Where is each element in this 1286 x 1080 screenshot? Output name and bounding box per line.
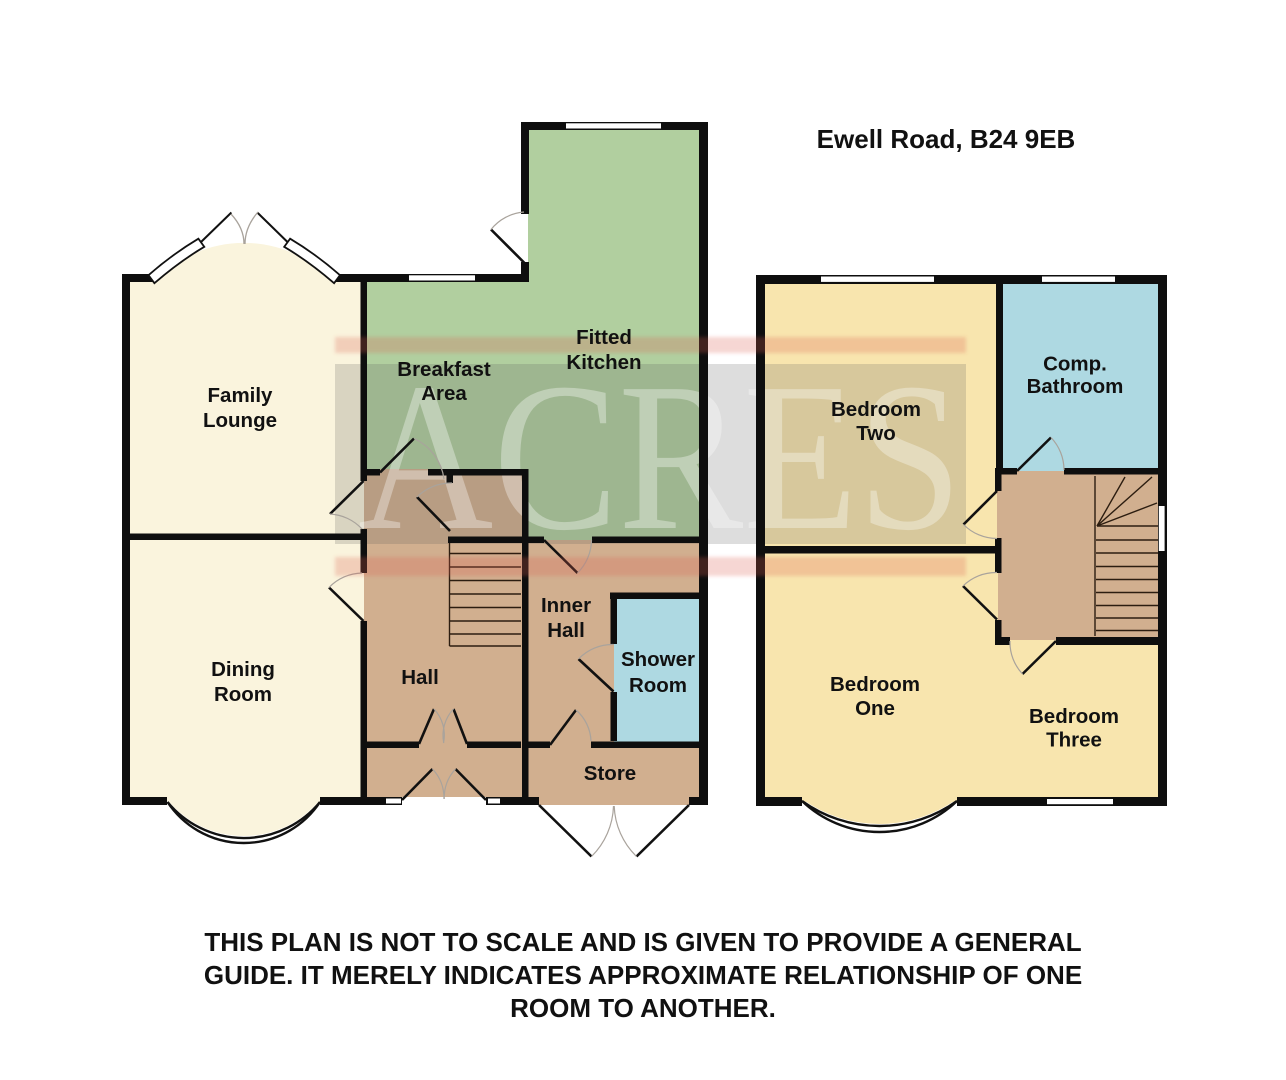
svg-text:Family: Family	[208, 384, 274, 407]
svg-text:Bathroom: Bathroom	[1027, 375, 1124, 398]
svg-text:GUIDE. IT MERELY INDICATES APP: GUIDE. IT MERELY INDICATES APPROXIMATE R…	[204, 960, 1082, 990]
svg-text:Bedroom: Bedroom	[831, 398, 921, 421]
svg-text:Three: Three	[1046, 729, 1102, 752]
svg-text:Room: Room	[629, 674, 687, 697]
svg-text:Dining: Dining	[211, 658, 275, 681]
svg-text:Hall: Hall	[401, 666, 439, 689]
svg-text:Room: Room	[214, 683, 272, 706]
svg-text:THIS PLAN IS NOT TO SCALE AND: THIS PLAN IS NOT TO SCALE AND IS GIVEN T…	[204, 927, 1081, 957]
svg-text:One: One	[855, 697, 895, 720]
svg-text:Shower: Shower	[621, 648, 695, 671]
svg-text:ROOM TO ANOTHER.: ROOM TO ANOTHER.	[510, 993, 776, 1023]
svg-text:Lounge: Lounge	[203, 409, 277, 432]
svg-text:Breakfast: Breakfast	[397, 358, 491, 381]
svg-text:Bedroom: Bedroom	[830, 673, 920, 696]
svg-text:Area: Area	[421, 382, 467, 405]
svg-text:Inner: Inner	[541, 594, 591, 617]
svg-text:Kitchen: Kitchen	[566, 351, 641, 374]
svg-text:Bedroom: Bedroom	[1029, 705, 1119, 728]
svg-text:Comp.: Comp.	[1043, 353, 1107, 376]
svg-text:Fitted: Fitted	[576, 326, 632, 349]
svg-text:Two: Two	[856, 422, 895, 445]
svg-text:Ewell Road, B24 9EB: Ewell Road, B24 9EB	[817, 124, 1076, 154]
svg-text:Hall: Hall	[547, 619, 585, 642]
svg-text:Store: Store	[584, 762, 636, 785]
